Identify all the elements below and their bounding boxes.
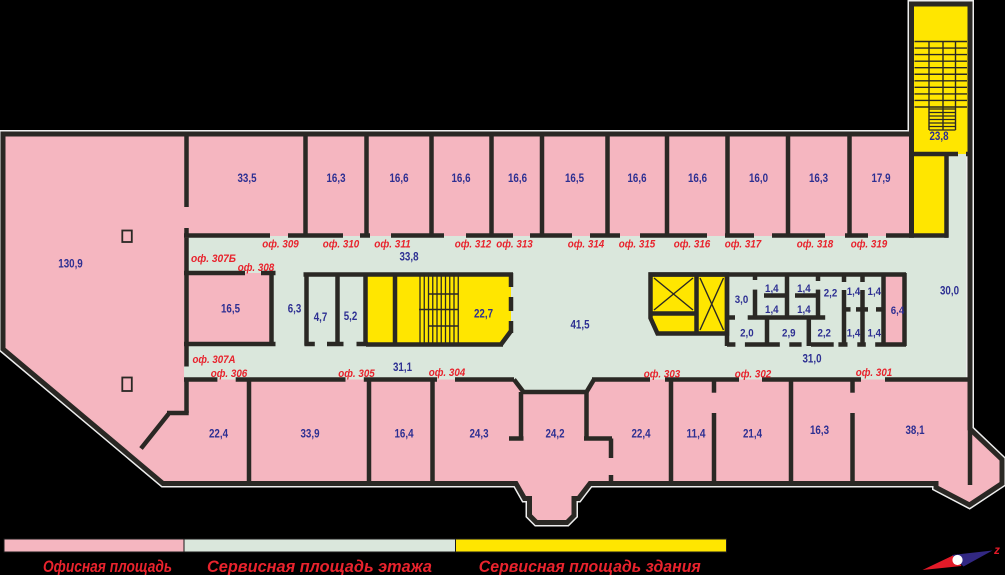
svg-text:оф. 318: оф. 318 [797,239,834,251]
svg-text:1,4: 1,4 [797,304,811,316]
svg-text:16,6: 16,6 [688,171,707,185]
svg-text:16,4: 16,4 [395,427,414,441]
svg-text:оф. 314: оф. 314 [568,239,605,251]
svg-text:оф. 317: оф. 317 [725,239,762,251]
svg-text:16,6: 16,6 [452,171,471,185]
svg-text:11,4: 11,4 [687,427,706,441]
svg-text:оф. 302: оф. 302 [735,369,772,381]
svg-text:16,0: 16,0 [749,171,768,185]
svg-text:23,8: 23,8 [930,129,949,143]
svg-text:1,4: 1,4 [797,283,811,295]
svg-text:30,0: 30,0 [940,284,959,298]
svg-text:оф. 306: оф. 306 [211,368,248,380]
svg-text:2,2: 2,2 [817,328,831,340]
svg-text:оф. 304: оф. 304 [429,367,466,379]
svg-text:130,9: 130,9 [58,259,83,271]
svg-text:2,2: 2,2 [824,288,838,300]
svg-text:1,4: 1,4 [847,286,861,298]
svg-text:оф. 315: оф. 315 [619,239,656,251]
svg-text:3,0: 3,0 [735,294,749,306]
svg-text:1,4: 1,4 [765,304,779,316]
svg-text:16,3: 16,3 [327,171,346,185]
svg-text:1,4: 1,4 [868,286,882,298]
svg-text:z: z [993,545,1000,557]
svg-text:Сервисная площадь здания: Сервисная площадь здания [479,557,701,575]
svg-text:41,5: 41,5 [571,318,590,332]
svg-text:24,2: 24,2 [546,427,565,441]
svg-text:31,1: 31,1 [393,360,412,374]
svg-text:33,8: 33,8 [400,250,419,264]
svg-text:Сервисная площадь этажа: Сервисная площадь этажа [207,557,432,575]
svg-text:16,3: 16,3 [809,171,828,185]
svg-text:6,4: 6,4 [891,305,905,317]
svg-text:2,0: 2,0 [740,328,754,340]
svg-text:16,5: 16,5 [221,302,240,316]
svg-text:21,4: 21,4 [743,427,762,441]
svg-text:22,4: 22,4 [632,427,651,441]
svg-text:оф. 308: оф. 308 [238,262,275,274]
svg-text:2,9: 2,9 [782,328,796,340]
svg-text:31,0: 31,0 [803,352,822,366]
svg-text:оф. 307А: оф. 307А [193,354,236,366]
svg-text:1,4: 1,4 [765,283,779,295]
svg-text:Офисная площадь: Офисная площадь [43,557,172,575]
svg-text:4,7: 4,7 [314,310,328,324]
svg-text:оф. 312: оф. 312 [455,239,492,251]
svg-text:16,6: 16,6 [508,171,527,185]
svg-text:1,4: 1,4 [847,328,861,340]
svg-text:16,3: 16,3 [810,423,829,437]
svg-text:17,9: 17,9 [872,171,891,185]
svg-text:22,7: 22,7 [474,307,493,321]
svg-text:оф. 313: оф. 313 [496,239,533,251]
svg-text:оф. 307Б: оф. 307Б [191,253,236,265]
svg-text:оф. 310: оф. 310 [323,239,360,251]
svg-text:16,5: 16,5 [565,171,584,185]
svg-text:оф. 303: оф. 303 [644,369,681,381]
svg-text:5,2: 5,2 [344,309,358,323]
svg-text:оф. 316: оф. 316 [674,239,711,251]
svg-text:33,5: 33,5 [238,171,257,185]
svg-text:22,4: 22,4 [209,427,228,441]
svg-text:оф. 319: оф. 319 [851,239,888,251]
svg-text:6,3: 6,3 [288,302,302,316]
svg-text:24,3: 24,3 [470,427,489,441]
svg-text:оф. 301: оф. 301 [856,367,893,379]
svg-text:16,6: 16,6 [390,171,409,185]
svg-text:16,6: 16,6 [628,171,647,185]
svg-text:оф. 309: оф. 309 [262,239,299,251]
svg-text:оф. 305: оф. 305 [338,368,375,380]
svg-text:38,1: 38,1 [906,423,925,437]
svg-text:1,4: 1,4 [868,328,882,340]
svg-text:33,9: 33,9 [301,427,320,441]
